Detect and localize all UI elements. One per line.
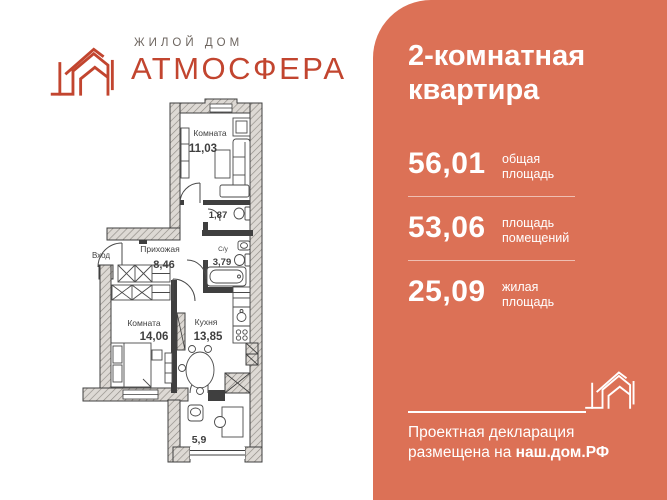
flyer: ЖИЛОЙ ДОМ АТМОСФЕРА [0,0,667,500]
wc-area: 1,87 [209,210,228,221]
declaration-rule [408,411,586,413]
apartment-title-line1: 2-комнатная [408,40,649,74]
stat-value: 56,01 [408,147,486,181]
kitchen-area: 13,85 [194,331,223,343]
info-panel: 2-комнатная квартира 56,01 общая площадь… [373,0,667,500]
floor-plan: Комната 11,03 1,87 Прихожая 8,46 С/у 3,7… [55,95,275,480]
apartment-title-line2: квартира [408,74,649,108]
stat-value: 53,06 [408,211,486,245]
apartment-title: 2-комнатная квартира [408,40,649,108]
stat-rooms-area: 53,06 площадь помещений [408,206,575,251]
stat-living-area: 25,09 жилая площадь [408,270,575,315]
house-outline-icon [584,363,640,413]
bath-area: 3,79 [213,257,232,268]
stats-divider [408,196,575,197]
declaration-line1: Проектная декларация [408,423,609,443]
room2-name: Комната [127,318,161,328]
room1-area: 11,03 [189,143,217,155]
hall-area: 8,46 [153,259,174,271]
declaration-link[interactable]: наш.дом.РФ [516,444,609,461]
declaration-line2: размещена на наш.дом.РФ [408,443,609,463]
logo-title: АТМОСФЕРА [131,51,347,87]
balcony-area: 5,9 [192,434,207,446]
hall-name: Прихожая [140,244,180,254]
stat-value: 25,09 [408,275,486,309]
room1-name: Комната [193,128,227,138]
stats-divider [408,260,575,261]
bath-name: С/у [218,246,229,253]
stat-label: жилая площадь [502,275,575,310]
entrance-label: Вход [92,251,110,260]
area-stats: 56,01 общая площадь 53,06 площадь помеще… [408,142,575,315]
stat-label: общая площадь [502,147,575,182]
stat-total-area: 56,01 общая площадь [408,142,575,187]
declaration-text: Проектная декларация размещена на наш.до… [408,423,609,464]
declaration-prefix: размещена на [408,444,516,461]
kitchen-name: Кухня [195,317,218,327]
room2-area: 14,06 [140,331,169,343]
logo-subtitle: ЖИЛОЙ ДОМ [134,37,243,49]
stat-label: площадь помещений [502,211,575,246]
